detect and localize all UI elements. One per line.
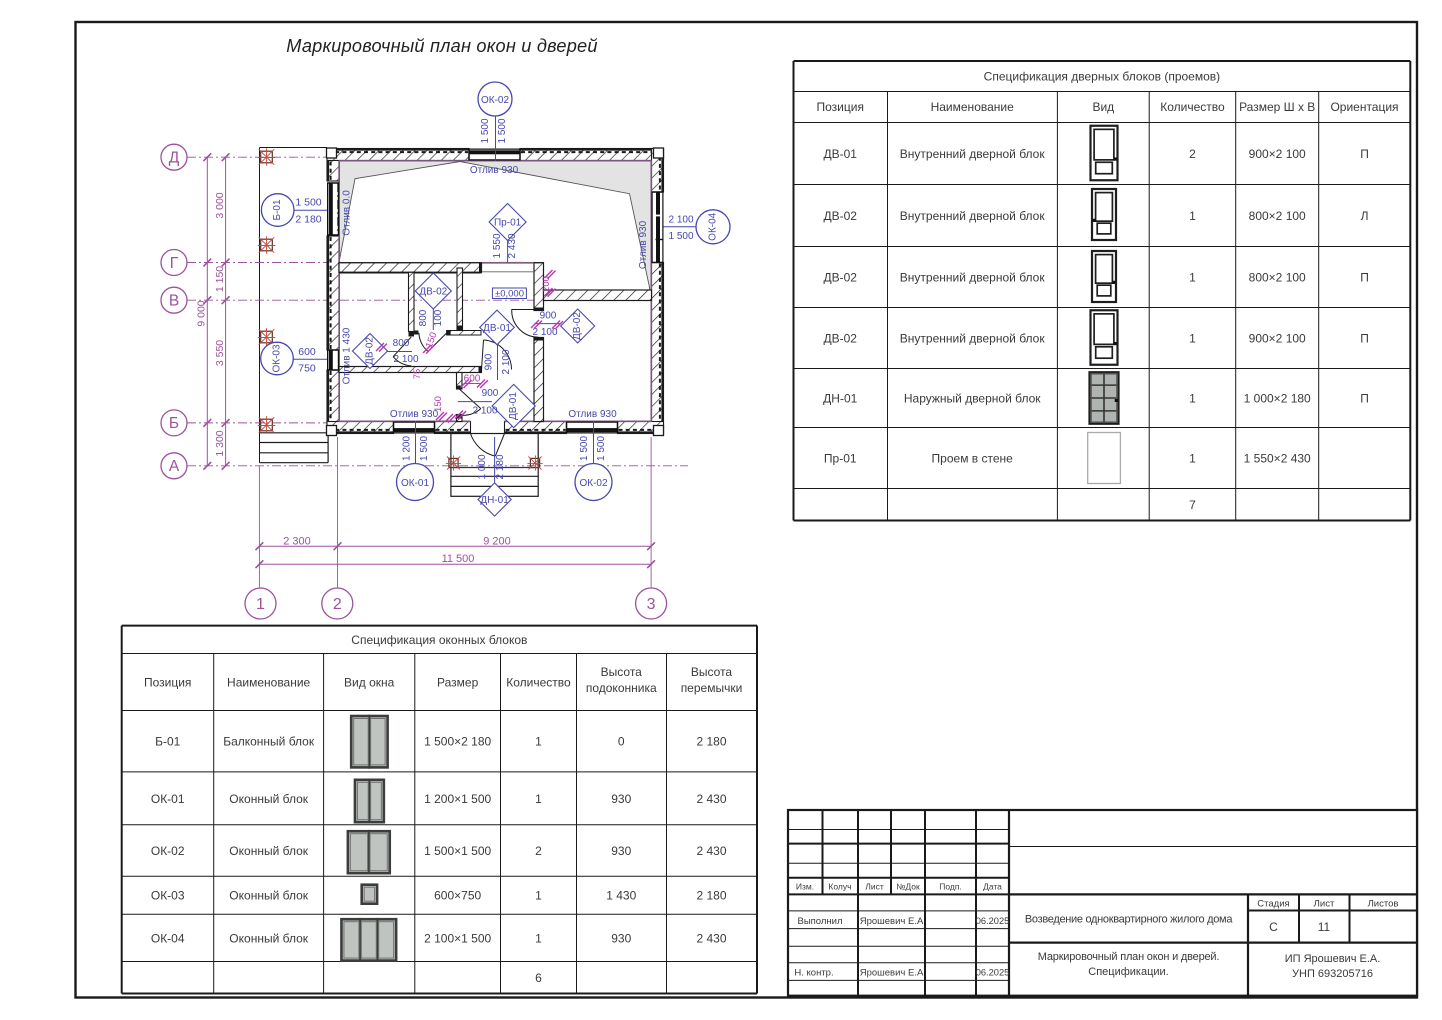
svg-text:800×2 100: 800×2 100 — [1249, 270, 1306, 284]
svg-text:2 100: 2 100 — [668, 215, 693, 226]
svg-text:Наружный дверной блок: Наружный дверной блок — [904, 391, 1041, 405]
svg-text:А: А — [169, 458, 180, 475]
svg-text:Оконный блок: Оконный блок — [229, 931, 308, 945]
svg-text:П: П — [1360, 391, 1369, 405]
svg-text:1 500: 1 500 — [596, 436, 607, 461]
svg-text:Отлив 0.0: Отлив 0.0 — [342, 190, 353, 236]
svg-text:3 550: 3 550 — [214, 340, 226, 366]
svg-text:900: 900 — [540, 311, 557, 322]
svg-text:ОК-03: ОК-03 — [151, 889, 185, 903]
svg-text:930: 930 — [611, 792, 631, 806]
svg-text:Маркировочный план окон и двер: Маркировочный план окон и дверей — [286, 36, 597, 56]
svg-text:УНП 693205716: УНП 693205716 — [1292, 968, 1373, 980]
svg-text:ИП Ярошевич Е.А.: ИП Ярошевич Е.А. — [1285, 953, 1381, 965]
svg-text:2 180: 2 180 — [495, 454, 506, 479]
svg-text:С: С — [1269, 920, 1278, 934]
svg-text:Позиция: Позиция — [144, 676, 191, 690]
svg-text:1: 1 — [535, 735, 542, 749]
svg-text:ОК-01: ОК-01 — [151, 792, 185, 806]
svg-text:1: 1 — [1189, 209, 1196, 223]
svg-text:Высота: Высота — [601, 665, 643, 679]
svg-text:Оконный блок: Оконный блок — [229, 844, 308, 858]
svg-text:ОК-04: ОК-04 — [708, 212, 719, 240]
svg-text:7: 7 — [1189, 498, 1196, 512]
svg-text:Количество: Количество — [506, 676, 571, 690]
svg-text:930: 930 — [611, 931, 631, 945]
svg-text:11 500: 11 500 — [442, 553, 475, 565]
svg-text:6: 6 — [535, 971, 542, 985]
svg-text:900×2 100: 900×2 100 — [1249, 147, 1306, 161]
svg-text:П: П — [1360, 331, 1369, 345]
svg-text:3 000: 3 000 — [214, 192, 226, 218]
svg-text:Вид: Вид — [1092, 100, 1114, 114]
svg-text:1: 1 — [1189, 451, 1196, 465]
svg-text:1 000: 1 000 — [477, 454, 488, 479]
svg-text:2 100×1 500: 2 100×1 500 — [424, 931, 491, 945]
svg-text:1 500: 1 500 — [480, 118, 491, 143]
svg-text:900×2 100: 900×2 100 — [1249, 331, 1306, 345]
svg-text:Возведение одноквартирного жил: Возведение одноквартирного жилого дома — [1025, 914, 1233, 926]
svg-text:Внутренний дверной блок: Внутренний дверной блок — [900, 270, 1046, 284]
svg-text:Размер Ш х В: Размер Ш х В — [1239, 100, 1315, 114]
svg-text:П: П — [1360, 270, 1369, 284]
svg-text:2 100: 2 100 — [532, 327, 557, 338]
svg-text:Спецификация дверных блоков (п: Спецификация дверных блоков (проемов) — [984, 70, 1220, 84]
svg-text:Высота: Высота — [691, 665, 733, 679]
svg-text:Ярошевич Е.А: Ярошевич Е.А — [860, 916, 924, 927]
svg-text:ДВ-01: ДВ-01 — [508, 392, 519, 420]
svg-text:Д: Д — [169, 150, 180, 167]
svg-text:Отлив 930: Отлив 930 — [568, 409, 617, 420]
svg-text:Отлив 930: Отлив 930 — [638, 220, 649, 269]
svg-text:Изм.: Изм. — [796, 882, 814, 892]
svg-text:75: 75 — [412, 369, 423, 380]
svg-text:Л: Л — [1361, 209, 1369, 223]
svg-text:1 430: 1 430 — [606, 889, 636, 903]
svg-text:ДВ-01: ДВ-01 — [824, 147, 858, 161]
svg-text:Ориентация: Ориентация — [1330, 100, 1398, 114]
svg-text:1 500×2 180: 1 500×2 180 — [424, 735, 491, 749]
svg-text:1: 1 — [1189, 331, 1196, 345]
svg-text:2 300: 2 300 — [283, 536, 311, 548]
svg-text:В: В — [169, 293, 179, 310]
svg-text:2 180: 2 180 — [295, 214, 321, 226]
svg-text:06.2025: 06.2025 — [976, 968, 1010, 978]
svg-text:600×750: 600×750 — [434, 889, 481, 903]
svg-text:800×2 100: 800×2 100 — [1249, 209, 1306, 223]
svg-text:1 300: 1 300 — [214, 430, 226, 456]
svg-text:800: 800 — [418, 309, 429, 326]
svg-text:2 430: 2 430 — [696, 931, 726, 945]
svg-text:2 430: 2 430 — [507, 233, 518, 258]
svg-text:ДВ-02: ДВ-02 — [824, 270, 858, 284]
svg-text:Ярошевич Е.А: Ярошевич Е.А — [860, 968, 924, 979]
svg-text:1 500: 1 500 — [497, 118, 508, 143]
svg-text:1 500: 1 500 — [579, 436, 590, 461]
svg-text:Отлив 930: Отлив 930 — [390, 409, 439, 420]
svg-text:2: 2 — [535, 844, 542, 858]
svg-text:ДН-01: ДН-01 — [823, 391, 857, 405]
svg-text:1: 1 — [535, 931, 542, 945]
svg-text:1: 1 — [535, 792, 542, 806]
svg-text:750: 750 — [298, 363, 316, 375]
svg-text:1 500×1 500: 1 500×1 500 — [424, 844, 491, 858]
svg-text:ДВ-02: ДВ-02 — [824, 209, 858, 223]
svg-text:900: 900 — [482, 388, 499, 399]
svg-text:ДН-01: ДН-01 — [480, 495, 509, 506]
svg-text:2: 2 — [1189, 147, 1196, 161]
svg-text:Внутренний дверной блок: Внутренний дверной блок — [900, 209, 1046, 223]
svg-text:Лист: Лист — [865, 882, 884, 892]
svg-text:Лист: Лист — [1314, 899, 1335, 910]
svg-text:Маркировочный план окон и двер: Маркировочный план окон и дверей. — [1038, 951, 1220, 963]
svg-text:Подп.: Подп. — [939, 882, 962, 892]
svg-text:06.2025: 06.2025 — [976, 916, 1010, 926]
svg-text:Спецификация оконных блоков: Спецификация оконных блоков — [351, 633, 527, 647]
svg-text:1 550×2 430: 1 550×2 430 — [1244, 451, 1311, 465]
svg-text:1 200×1 500: 1 200×1 500 — [424, 792, 491, 806]
svg-text:ДВ-02: ДВ-02 — [419, 287, 447, 298]
svg-text:2 100: 2 100 — [393, 354, 418, 365]
svg-text:Выполнил: Выполнил — [797, 916, 842, 927]
svg-text:1 500: 1 500 — [419, 436, 430, 461]
svg-text:ДВ-02: ДВ-02 — [365, 337, 376, 365]
svg-text:0: 0 — [618, 735, 625, 749]
svg-text:ДВ-02: ДВ-02 — [824, 331, 858, 345]
svg-text:Спецификации.: Спецификации. — [1088, 966, 1168, 978]
svg-text:ОК-02: ОК-02 — [151, 844, 185, 858]
svg-text:Листов: Листов — [1368, 899, 1399, 910]
svg-text:ОК-03: ОК-03 — [272, 344, 283, 372]
svg-text:1 550: 1 550 — [492, 233, 503, 258]
svg-text:перемычки: перемычки — [681, 681, 743, 695]
svg-text:Г: Г — [170, 255, 179, 272]
svg-text:600: 600 — [464, 374, 481, 385]
svg-text:1 500: 1 500 — [295, 197, 321, 209]
svg-text:150: 150 — [433, 396, 444, 412]
svg-text:П: П — [1360, 147, 1369, 161]
svg-text:600: 600 — [298, 346, 316, 358]
svg-text:Наименование: Наименование — [931, 100, 1015, 114]
svg-text:Б-01: Б-01 — [155, 735, 181, 749]
svg-text:1: 1 — [1189, 391, 1196, 405]
svg-text:ОК-02: ОК-02 — [579, 478, 607, 489]
svg-text:1: 1 — [1189, 270, 1196, 284]
svg-text:подоконника: подоконника — [586, 681, 657, 695]
svg-text:±0,000: ±0,000 — [495, 289, 524, 300]
svg-text:900: 900 — [484, 353, 495, 370]
svg-text:Пр-01: Пр-01 — [494, 218, 522, 229]
svg-text:2: 2 — [333, 596, 342, 613]
svg-text:1: 1 — [535, 889, 542, 903]
svg-text:1 500: 1 500 — [668, 231, 693, 242]
svg-text:1 000×2 180: 1 000×2 180 — [1244, 391, 1311, 405]
svg-text:Оконный блок: Оконный блок — [229, 792, 308, 806]
svg-text:800: 800 — [393, 338, 410, 349]
svg-text:2 180: 2 180 — [696, 735, 726, 749]
svg-text:Дата: Дата — [983, 882, 1002, 892]
svg-text:Наименование: Наименование — [227, 676, 311, 690]
svg-text:Вид окна: Вид окна — [344, 676, 395, 690]
svg-text:11: 11 — [1318, 920, 1331, 934]
svg-text:Стадия: Стадия — [1257, 899, 1289, 910]
svg-text:3: 3 — [647, 596, 656, 613]
svg-text:Оконный блок: Оконный блок — [229, 889, 308, 903]
svg-text:Позиция: Позиция — [817, 100, 864, 114]
svg-text:2 100: 2 100 — [501, 349, 512, 374]
svg-text:Пр-01: Пр-01 — [824, 451, 857, 465]
svg-text:2 180: 2 180 — [696, 889, 726, 903]
svg-text:Внутренний дверной блок: Внутренний дверной блок — [900, 331, 1046, 345]
svg-text:2 430: 2 430 — [696, 792, 726, 806]
svg-text:Внутренний дверной блок: Внутренний дверной блок — [900, 147, 1046, 161]
svg-text:№Док: №Док — [896, 882, 920, 892]
svg-text:9 000: 9 000 — [196, 300, 208, 326]
svg-text:Размер: Размер — [437, 676, 479, 690]
svg-text:ОК-01: ОК-01 — [401, 478, 429, 489]
svg-text:Балконный блок: Балконный блок — [223, 735, 315, 749]
svg-text:Колуч: Колуч — [828, 882, 851, 892]
svg-text:930: 930 — [611, 844, 631, 858]
svg-text:1 150: 1 150 — [214, 266, 226, 292]
svg-text:9 200: 9 200 — [483, 536, 511, 548]
svg-text:2 430: 2 430 — [696, 844, 726, 858]
svg-text:Отлив 930: Отлив 930 — [470, 165, 519, 176]
svg-text:ДВ-01: ДВ-01 — [483, 323, 511, 334]
svg-text:100: 100 — [433, 309, 444, 326]
svg-text:Отлив 1 430: Отлив 1 430 — [342, 327, 353, 384]
svg-text:Б: Б — [169, 415, 179, 432]
svg-text:2 100: 2 100 — [472, 406, 497, 417]
svg-text:Проем в стене: Проем в стене — [932, 451, 1014, 465]
svg-text:Б-01: Б-01 — [272, 199, 283, 220]
svg-text:Количество: Количество — [1160, 100, 1225, 114]
svg-text:ОК-04: ОК-04 — [151, 931, 185, 945]
svg-text:ОК-02: ОК-02 — [481, 95, 509, 106]
svg-text:1 200: 1 200 — [402, 436, 413, 461]
svg-text:ДВ-02: ДВ-02 — [572, 312, 583, 340]
svg-text:Н. контр.: Н. контр. — [794, 968, 833, 979]
svg-text:1: 1 — [256, 596, 265, 613]
